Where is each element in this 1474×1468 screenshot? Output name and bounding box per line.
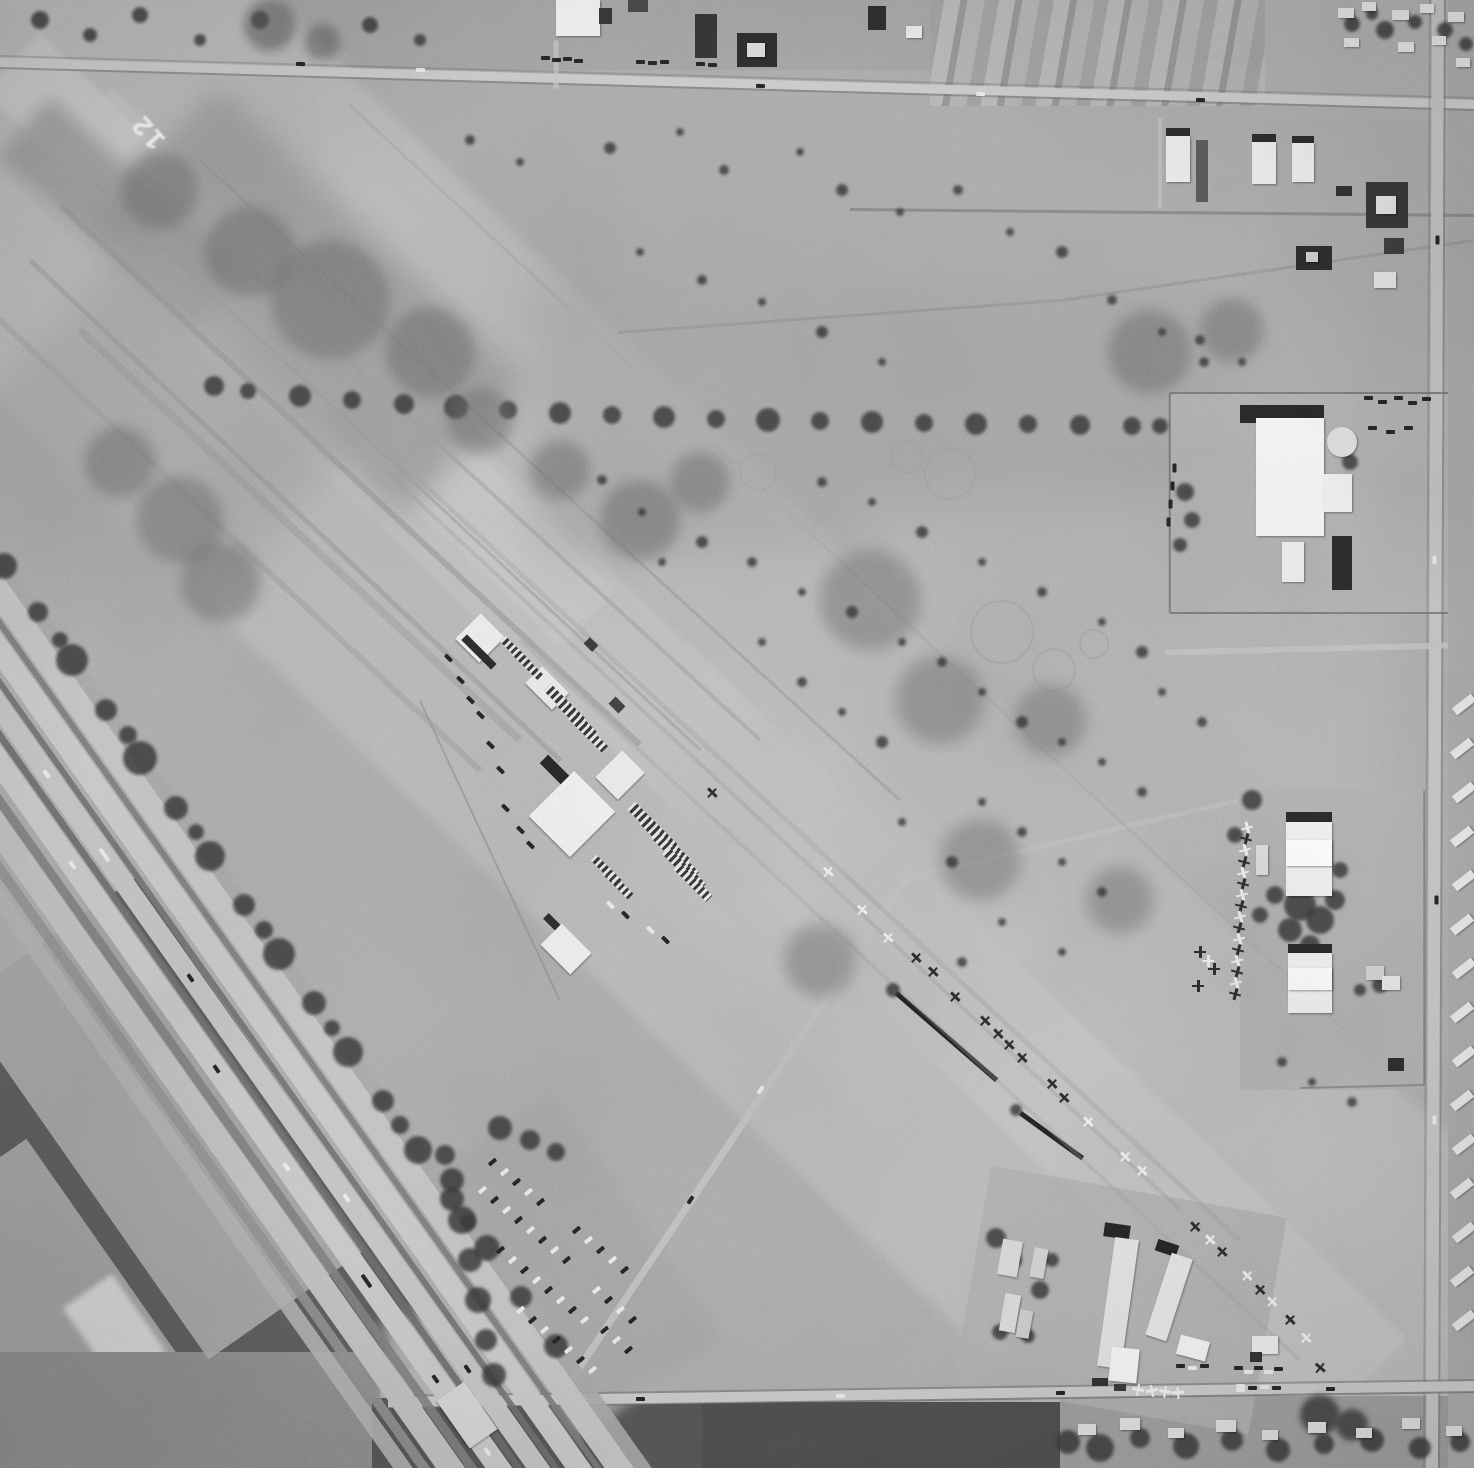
tree — [1086, 1434, 1114, 1462]
vehicle — [1234, 1366, 1243, 1370]
vehicle — [415, 68, 424, 72]
building — [1282, 542, 1304, 582]
scrub-patch — [670, 452, 730, 512]
vehicle — [574, 59, 583, 63]
vehicle — [1235, 1388, 1244, 1392]
vehicle — [563, 57, 572, 61]
tree — [394, 394, 414, 414]
scrub-patch — [385, 307, 475, 397]
tree — [465, 1287, 491, 1313]
tree — [1332, 862, 1348, 878]
tree — [811, 412, 829, 430]
tree — [1017, 827, 1027, 837]
building — [1392, 10, 1409, 20]
scrub-patch — [84, 426, 156, 498]
vehicle — [635, 1397, 644, 1401]
building — [1292, 136, 1314, 143]
tree — [1266, 1438, 1290, 1462]
building — [1446, 1426, 1462, 1436]
tree — [1152, 418, 1168, 434]
tree — [636, 248, 644, 256]
dirt-track-circle — [739, 453, 777, 491]
scrub-patch — [244, 0, 296, 51]
vehicle — [1274, 1367, 1283, 1371]
vehicle — [1195, 98, 1204, 102]
vehicle — [1378, 400, 1387, 404]
tree — [915, 414, 933, 432]
tree — [255, 921, 273, 939]
tree — [372, 1090, 394, 1112]
scrub-patch — [1200, 298, 1264, 362]
tree — [188, 824, 204, 840]
building — [599, 8, 612, 24]
building — [1384, 238, 1404, 254]
vehicle — [295, 62, 304, 66]
building — [1262, 1430, 1278, 1440]
tree — [488, 1116, 512, 1140]
building — [1344, 38, 1359, 47]
tree — [1221, 1429, 1243, 1451]
dirt-track-circle — [1079, 629, 1109, 659]
building — [1256, 418, 1324, 536]
vehicle — [1435, 236, 1439, 245]
building — [1324, 474, 1352, 512]
tree — [52, 632, 68, 648]
vehicle — [708, 63, 717, 67]
tree — [946, 856, 958, 868]
vehicle — [1055, 1391, 1064, 1395]
tree — [343, 391, 361, 409]
hangar-fence — [1423, 790, 1425, 1085]
tree — [1056, 1430, 1080, 1454]
building — [1336, 186, 1352, 196]
aircraft — [1208, 963, 1220, 975]
building — [1286, 812, 1332, 822]
tree — [448, 1206, 476, 1234]
building — [1420, 4, 1434, 13]
vehicle — [1434, 896, 1438, 905]
scrub-patch — [530, 440, 590, 500]
tree — [836, 184, 848, 196]
tree — [204, 376, 224, 396]
vehicle — [660, 60, 669, 64]
tree — [1347, 1097, 1357, 1107]
tree — [978, 558, 986, 566]
tree — [758, 298, 766, 306]
tree — [510, 1286, 532, 1308]
tree — [747, 557, 757, 567]
scrub-patch — [1087, 867, 1153, 933]
tree — [1376, 21, 1394, 39]
tree — [696, 536, 708, 548]
vehicle — [1170, 482, 1174, 491]
vehicle — [1272, 1386, 1281, 1390]
tree — [707, 410, 725, 428]
tree — [83, 28, 97, 42]
building — [1166, 136, 1190, 182]
tree — [1107, 295, 1117, 305]
building — [1120, 1418, 1140, 1430]
building — [1374, 272, 1396, 288]
tree — [324, 1020, 340, 1036]
scrub-patch — [180, 542, 260, 622]
tree — [516, 158, 524, 166]
tree — [1098, 758, 1106, 766]
vehicle — [1166, 518, 1170, 527]
tree — [676, 128, 684, 136]
tree — [1459, 37, 1473, 51]
building — [695, 14, 717, 58]
vehicle — [1368, 426, 1377, 430]
tree — [965, 413, 987, 435]
vehicle — [1408, 401, 1417, 405]
tree — [878, 358, 886, 366]
tree — [797, 677, 807, 687]
building — [1327, 427, 1357, 457]
tree — [520, 1130, 540, 1150]
scrub-patch — [896, 656, 984, 744]
tree — [796, 148, 804, 156]
tree — [978, 798, 986, 806]
tree — [1031, 1281, 1049, 1299]
building — [1168, 1428, 1184, 1438]
tree — [1130, 1428, 1150, 1448]
building — [1398, 42, 1414, 52]
aircraft — [1158, 1385, 1172, 1399]
vehicle — [1432, 1116, 1436, 1125]
tree — [132, 7, 148, 23]
tree — [1010, 1104, 1022, 1116]
fence-track — [1060, 239, 1474, 301]
aircraft — [1145, 1384, 1159, 1398]
vehicle — [648, 61, 657, 65]
tree — [846, 606, 858, 618]
tree — [31, 11, 49, 29]
vehicle — [1248, 1386, 1257, 1390]
tree — [1266, 886, 1284, 904]
building — [1292, 143, 1314, 182]
building — [1288, 968, 1332, 990]
scrub-patch — [56, 644, 88, 676]
tree — [164, 796, 188, 820]
tree — [953, 185, 963, 195]
building — [1092, 1378, 1108, 1386]
tree — [1354, 984, 1366, 996]
tree — [28, 602, 48, 622]
building — [1252, 142, 1276, 184]
aircraft — [1171, 1386, 1184, 1399]
vehicle — [1364, 396, 1373, 400]
building — [1256, 845, 1268, 875]
tree — [1278, 918, 1302, 942]
building — [1252, 134, 1276, 142]
tree — [697, 275, 707, 285]
tree — [898, 818, 906, 826]
tree — [1308, 1078, 1316, 1086]
scrub-patch — [205, 207, 295, 297]
vehicle — [1404, 426, 1413, 430]
building — [1196, 140, 1208, 202]
aircraft — [1131, 1383, 1145, 1397]
tree — [1098, 618, 1106, 626]
tree — [1058, 948, 1066, 956]
building — [1250, 1352, 1262, 1362]
tree — [549, 402, 571, 424]
tree — [240, 383, 256, 399]
tree — [998, 918, 1006, 926]
vehicle — [1394, 396, 1403, 400]
dirt-track-circle — [890, 440, 924, 474]
building — [1432, 36, 1446, 45]
building — [906, 26, 922, 38]
scrub-patch — [1108, 310, 1192, 394]
building — [556, 0, 600, 36]
tree — [1097, 887, 1107, 897]
vehicle — [636, 60, 645, 64]
tree — [597, 475, 607, 485]
tree — [465, 135, 475, 145]
tree — [1056, 246, 1068, 258]
tree — [362, 17, 378, 33]
vehicle — [835, 1394, 844, 1398]
building — [1402, 1418, 1420, 1429]
tree — [868, 498, 876, 506]
tree — [756, 408, 780, 432]
vehicle — [1236, 1384, 1245, 1388]
building — [1288, 944, 1332, 953]
tree — [861, 411, 883, 433]
tree — [1173, 538, 1187, 552]
tree — [1252, 907, 1268, 923]
tree — [1184, 512, 1200, 528]
tree — [876, 736, 888, 748]
vehicle — [541, 56, 550, 60]
tree — [404, 1136, 432, 1164]
tree — [758, 638, 766, 646]
building — [1356, 1428, 1372, 1438]
dirt-track-circle — [924, 448, 976, 500]
tree — [233, 894, 255, 916]
vehicle — [1264, 1370, 1273, 1374]
vehicle — [755, 84, 764, 88]
tree — [289, 385, 311, 407]
vehicle — [1432, 556, 1436, 565]
tree — [302, 991, 326, 1015]
tree — [435, 1145, 455, 1165]
tree — [194, 34, 206, 46]
building — [1376, 196, 1396, 214]
tree — [547, 1143, 565, 1161]
tree — [898, 638, 906, 646]
tree — [604, 142, 616, 154]
aircraft — [1192, 980, 1204, 992]
tree — [95, 699, 117, 721]
tree — [1058, 858, 1066, 866]
tree — [440, 1168, 464, 1192]
vehicle — [1422, 397, 1431, 401]
building — [1166, 128, 1190, 136]
tree — [978, 688, 986, 696]
tree — [1123, 417, 1141, 435]
building — [1382, 976, 1400, 990]
building — [1388, 1058, 1404, 1071]
vehicle — [975, 92, 984, 96]
tree — [1238, 358, 1246, 366]
tree — [195, 841, 225, 871]
tree — [603, 406, 621, 424]
building — [1456, 58, 1470, 67]
tree — [1136, 646, 1148, 658]
tree — [414, 34, 426, 46]
tree — [653, 406, 675, 428]
tree — [1408, 15, 1422, 29]
vehicle — [1168, 500, 1172, 509]
building — [747, 43, 765, 57]
tree — [482, 1363, 506, 1387]
residential-strip-ground — [1448, 0, 1474, 1468]
hangar-yard-pad — [1240, 790, 1430, 1090]
building — [1078, 1424, 1096, 1435]
tree — [1058, 738, 1066, 746]
tree — [1409, 1437, 1431, 1459]
compound-fence — [1170, 392, 1448, 394]
compound-fence — [1170, 612, 1448, 614]
vehicle — [1260, 1385, 1269, 1389]
aerial-photo: 12 — [0, 0, 1474, 1468]
building — [1306, 252, 1318, 262]
tree — [719, 165, 729, 175]
tree — [896, 208, 904, 216]
tree — [1242, 790, 1262, 810]
vehicle — [1188, 1366, 1197, 1370]
scrub-patch — [123, 741, 157, 775]
tree — [798, 588, 806, 596]
farm-track — [1158, 118, 1162, 208]
vehicle — [1386, 430, 1395, 434]
tree — [1016, 716, 1028, 728]
tree — [1306, 906, 1334, 934]
driveway — [554, 40, 559, 88]
building — [1308, 1422, 1326, 1433]
tree — [1137, 787, 1147, 797]
tree — [1006, 228, 1014, 236]
tree — [916, 526, 928, 538]
vehicle — [1176, 1364, 1185, 1368]
tree — [816, 326, 828, 338]
tree — [1176, 483, 1194, 501]
scrub-patch — [447, 387, 513, 453]
tree — [119, 726, 137, 744]
dark-field — [702, 1402, 1060, 1468]
building — [1216, 1420, 1236, 1432]
tree — [333, 1037, 363, 1067]
tree — [1158, 328, 1166, 336]
scrub-patch — [820, 550, 920, 650]
tree — [1314, 1434, 1334, 1454]
scrub-patch — [304, 24, 340, 60]
tree — [937, 657, 947, 667]
vehicle — [1200, 1364, 1209, 1368]
vehicle — [1244, 1370, 1253, 1374]
building — [1448, 12, 1464, 22]
tree — [1344, 16, 1360, 32]
tree — [638, 508, 646, 516]
tree — [475, 1329, 497, 1351]
building — [1286, 840, 1332, 866]
tree — [838, 708, 846, 716]
vehicle — [552, 58, 561, 62]
building — [628, 0, 648, 12]
tree — [391, 1116, 409, 1134]
scrub-patch — [784, 924, 856, 996]
building — [1332, 536, 1352, 590]
building — [1108, 1347, 1139, 1384]
vehicle — [1325, 1387, 1334, 1391]
tree — [1019, 415, 1037, 433]
tree — [957, 957, 967, 967]
tree — [886, 983, 900, 997]
tree — [1037, 587, 1047, 597]
vehicle — [1254, 1366, 1263, 1370]
tree — [1158, 688, 1166, 696]
vehicle — [1172, 464, 1176, 473]
vehicle — [696, 62, 705, 66]
tree — [658, 558, 666, 566]
building — [1114, 1384, 1126, 1391]
tree — [817, 477, 827, 487]
tree — [1199, 357, 1209, 367]
tree — [1195, 335, 1205, 345]
scrub-patch — [263, 938, 295, 970]
tree — [1197, 717, 1207, 727]
dirt-track-circle — [970, 600, 1034, 664]
scrub-patch — [600, 480, 680, 560]
building — [1338, 8, 1354, 18]
tree — [458, 1248, 482, 1272]
tree — [1070, 415, 1090, 435]
building — [1362, 2, 1376, 11]
building — [868, 6, 886, 30]
tree — [1277, 1057, 1287, 1067]
scrub-patch — [122, 152, 198, 228]
